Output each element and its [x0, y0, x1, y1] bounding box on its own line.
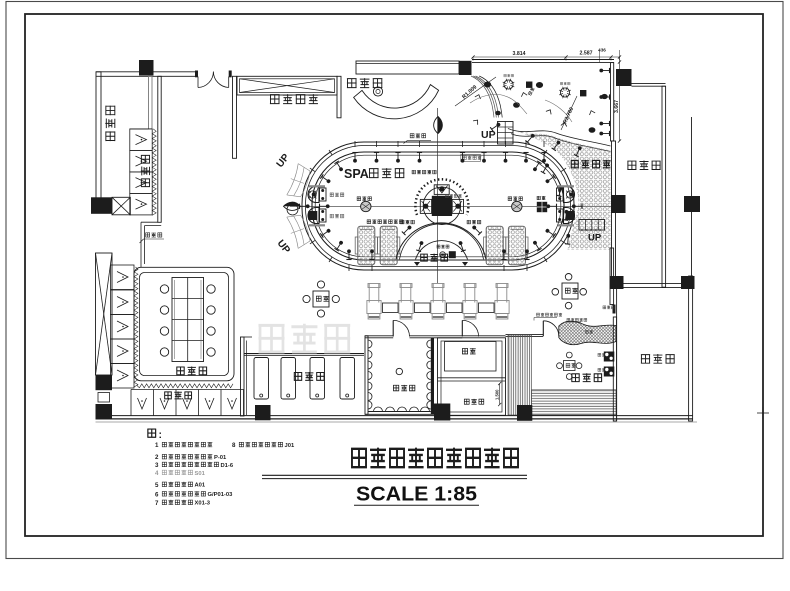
svg-text:UP: UP — [588, 233, 602, 244]
svg-text:SCALE 1:85: SCALE 1:85 — [356, 483, 477, 506]
svg-text:6: 6 — [155, 491, 159, 498]
svg-text:8: 8 — [232, 442, 236, 449]
svg-text:4: 4 — [155, 470, 159, 477]
svg-text:X01-3: X01-3 — [195, 501, 211, 507]
svg-text:UP: UP — [481, 129, 496, 141]
svg-text:A01: A01 — [195, 483, 206, 489]
svg-text:7: 7 — [155, 500, 159, 507]
svg-text:SPA: SPA — [344, 167, 369, 181]
svg-text:2.587: 2.587 — [580, 50, 593, 56]
svg-text:D1-6: D1-6 — [221, 463, 234, 469]
svg-text::: : — [159, 429, 163, 441]
svg-text:5: 5 — [155, 482, 159, 489]
svg-text:3: 3 — [155, 462, 159, 469]
svg-text:1: 1 — [155, 442, 159, 449]
svg-text:1.500: 1.500 — [495, 389, 500, 400]
svg-text:3.667: 3.667 — [614, 100, 620, 113]
svg-text:J01: J01 — [285, 443, 295, 449]
svg-text:3.814: 3.814 — [513, 51, 526, 57]
svg-text:G/P01-03: G/P01-03 — [208, 492, 234, 498]
svg-text:2: 2 — [155, 454, 159, 461]
svg-text:S01: S01 — [195, 471, 206, 477]
svg-text:P-01: P-01 — [214, 455, 227, 461]
